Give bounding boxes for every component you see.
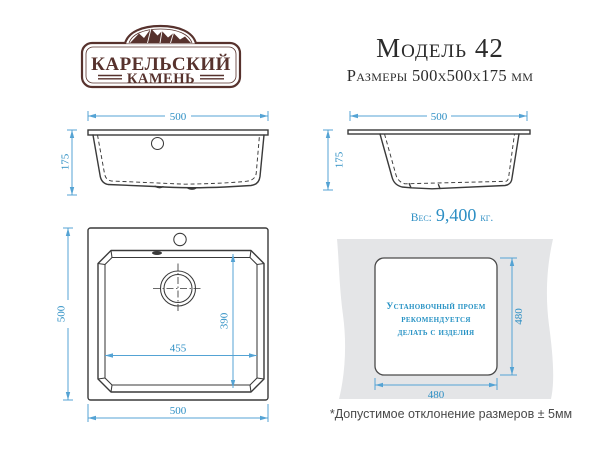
weight-unit: кг. xyxy=(480,212,493,224)
title-block: Модель 42 Размеры 500х500х175 мм xyxy=(315,34,565,86)
dim-label-side-width: 500 xyxy=(431,111,448,123)
dim-top-height: 500 xyxy=(56,228,74,400)
model-title: Модель 42 xyxy=(315,34,565,64)
brand-logo: КАРЕЛЬСКИЙ КАМЕНЬ xyxy=(70,12,260,97)
dim-label-front-width: 500 xyxy=(170,111,187,123)
cutout-note-line1: Установочный проем xyxy=(386,302,485,312)
spec-sheet-page: КАРЕЛЬСКИЙ КАМЕНЬ Модель 42 Размеры 500х… xyxy=(0,0,600,460)
cutout-note-line3: делать с изделия xyxy=(398,328,475,338)
dim-label-side-height: 175 xyxy=(334,151,346,168)
side-view-side: 500 175 xyxy=(320,105,585,205)
weight-value: 9,400 xyxy=(436,205,477,225)
weight-note: Вес: 9,400 кг. xyxy=(372,205,532,226)
dim-side-width: 500 xyxy=(350,111,527,123)
cutout-note-line2: рекомендуется xyxy=(401,315,470,325)
dim-label-top-width: 500 xyxy=(170,405,187,417)
dim-label-cutout-width: 480 xyxy=(428,389,445,401)
dim-label-bowl-depth: 390 xyxy=(219,312,231,329)
sink-top-outline xyxy=(88,228,268,400)
dim-front-width: 500 xyxy=(88,111,268,123)
dim-front-height: 175 xyxy=(60,130,78,195)
weight-label: Вес: xyxy=(411,212,432,224)
overflow-slot xyxy=(152,251,162,255)
dimensions-subtitle: Размеры 500х500х175 мм xyxy=(315,66,565,86)
side-view-front: 500 175 xyxy=(55,105,300,205)
logo-line2: КАМЕНЬ xyxy=(127,71,195,87)
cutout-diagram: Установочный проем рекомендуется делать … xyxy=(325,235,580,407)
dim-label-top-height: 500 xyxy=(56,305,68,322)
sink-profile-front xyxy=(88,130,268,189)
dim-side-height: 175 xyxy=(323,130,346,190)
dim-label-cutout-height: 480 xyxy=(513,308,525,325)
dim-top-width: 500 xyxy=(88,404,268,422)
dim-label-bowl-width: 455 xyxy=(170,343,187,355)
sink-profile-side xyxy=(348,130,530,189)
dim-label-front-height: 175 xyxy=(60,153,72,170)
top-view: 455 390 500 500 xyxy=(50,220,300,432)
tolerance-footnote: *Допустимое отклонение размеров ± 5мм xyxy=(326,407,576,421)
